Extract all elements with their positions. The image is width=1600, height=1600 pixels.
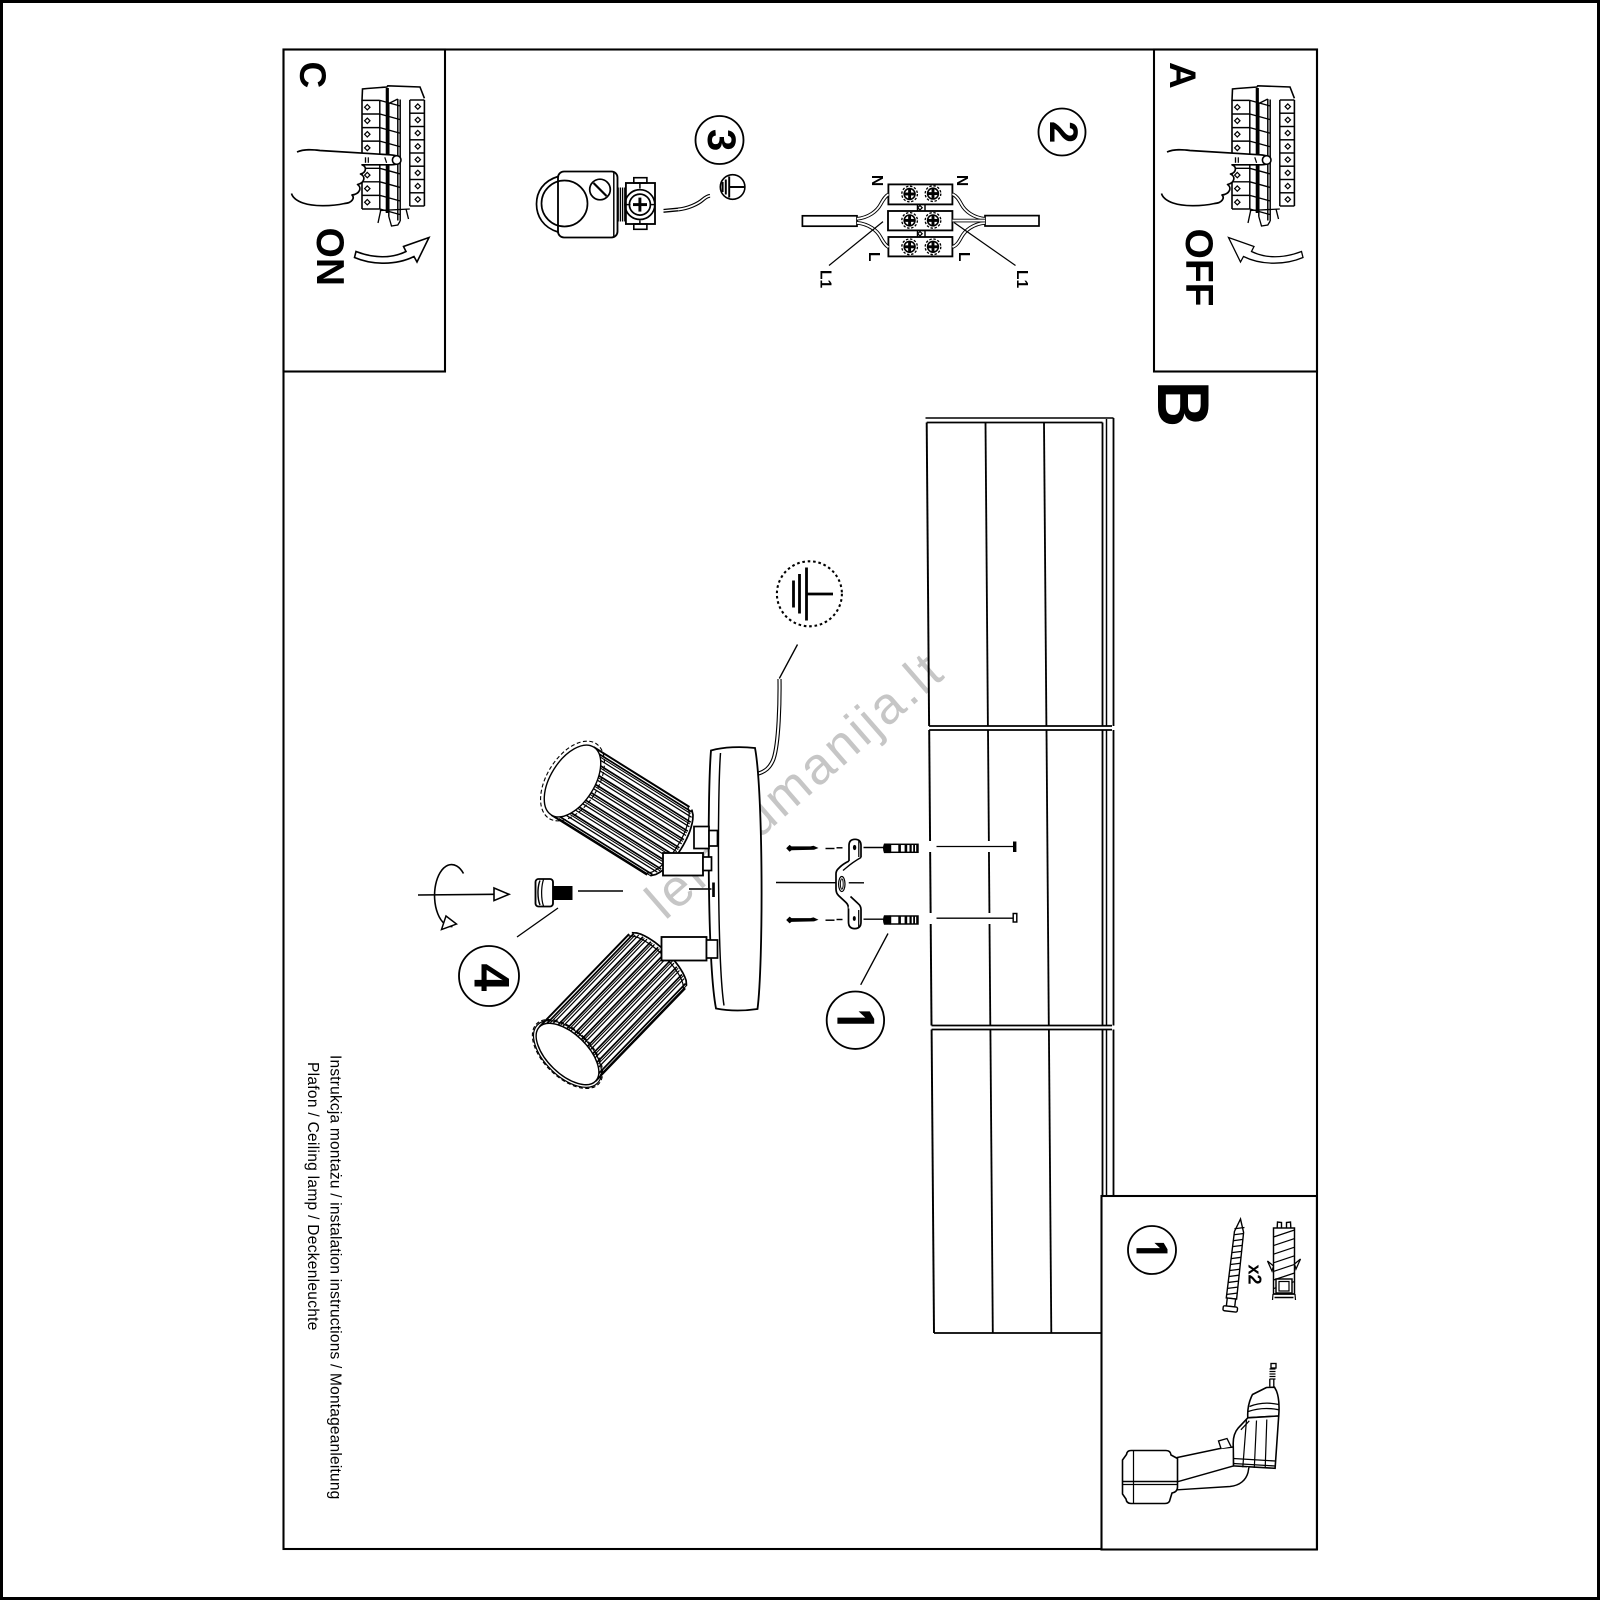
svg-text:L: L [865, 252, 882, 261]
svg-text:L: L [955, 252, 972, 261]
svg-text:3: 3 [699, 129, 743, 151]
svg-text:C: C [292, 62, 333, 89]
svg-text:Plafon / Ceiling lamp / Decken: Plafon / Ceiling lamp / Deckenleuchte [304, 1062, 321, 1331]
svg-text:2: 2 [1041, 121, 1085, 143]
svg-text:x2: x2 [1245, 1265, 1265, 1285]
svg-text:ON: ON [308, 228, 351, 287]
svg-text:A: A [1162, 62, 1203, 89]
svg-text:L1: L1 [817, 270, 834, 288]
svg-text:L1: L1 [1013, 270, 1030, 288]
svg-text:Instrukcja montażu / instalati: Instrukcja montażu / instalation instruc… [327, 1055, 344, 1499]
svg-text:N: N [868, 175, 885, 186]
svg-text:OFF: OFF [1177, 229, 1220, 307]
svg-text:4: 4 [464, 964, 520, 992]
svg-text:N: N [953, 175, 970, 186]
svg-text:B: B [1142, 381, 1223, 427]
